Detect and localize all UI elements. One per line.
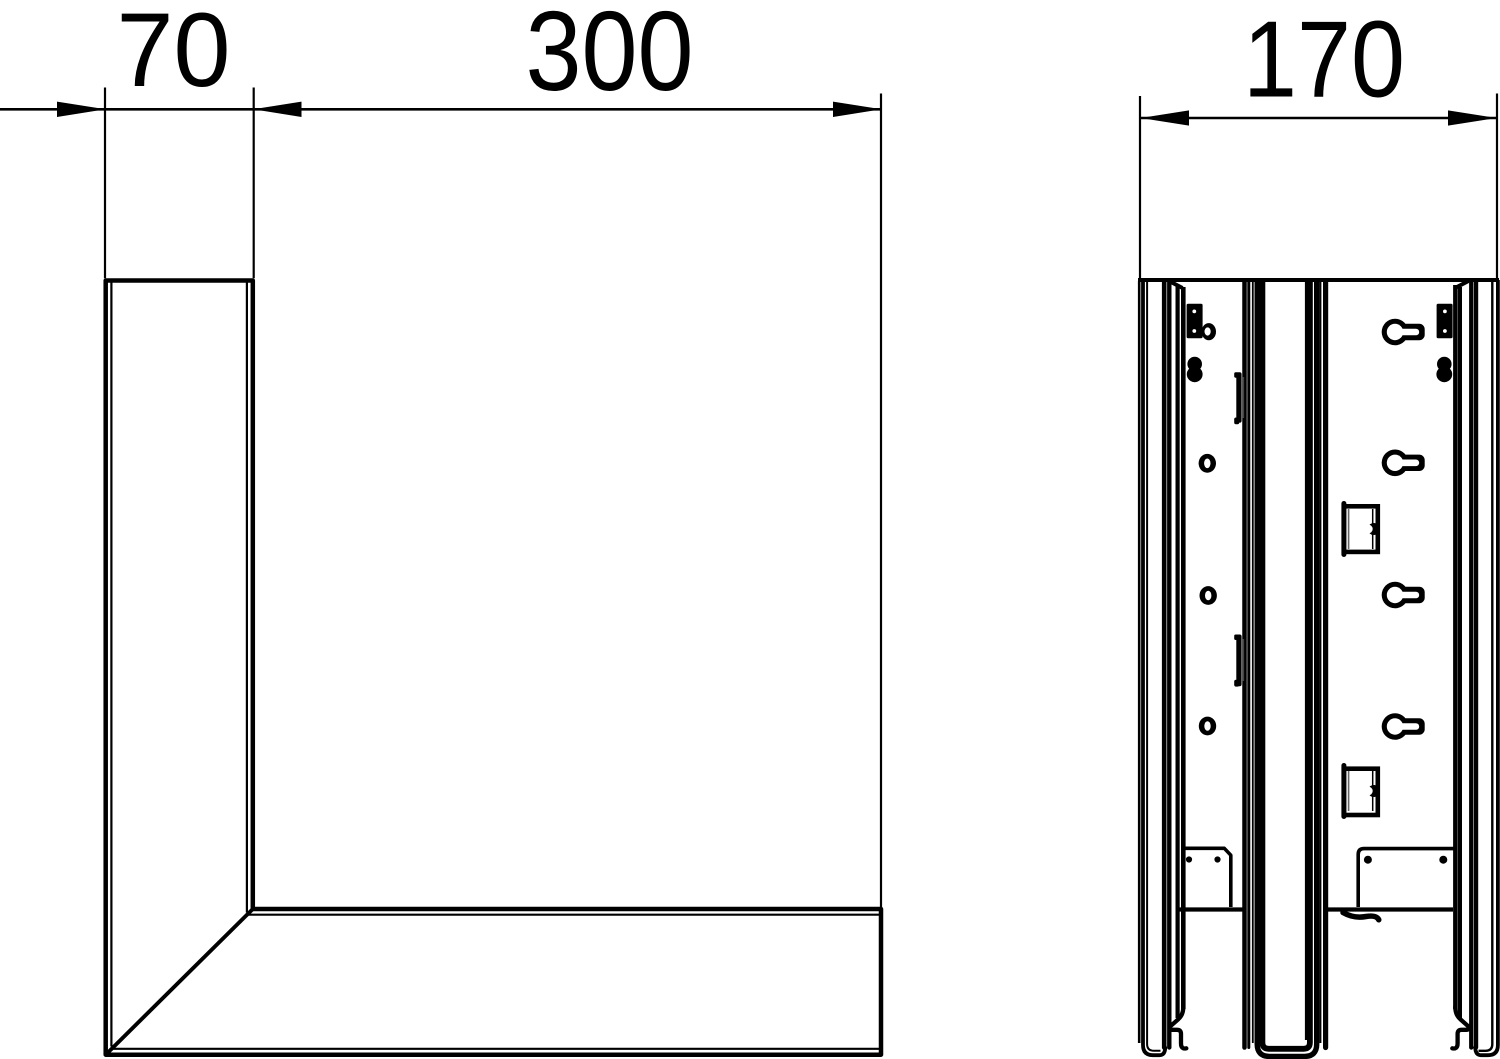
svg-text:70: 70 [117,0,231,109]
svg-text:170: 170 [1243,0,1405,121]
svg-text:300: 300 [526,0,694,114]
